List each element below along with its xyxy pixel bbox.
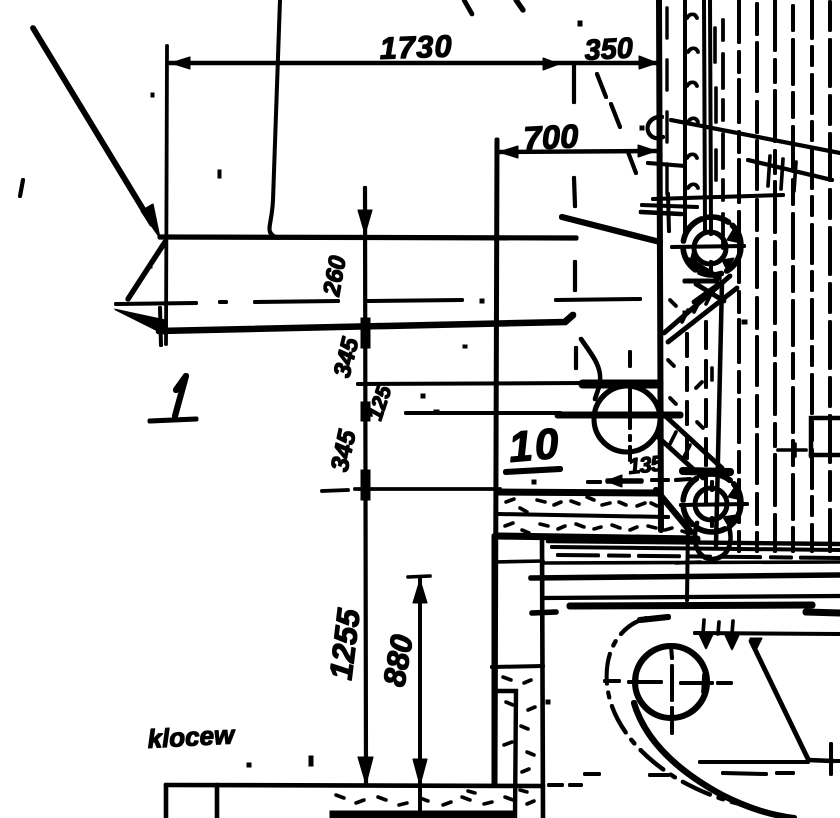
- svg-text:1730: 1730: [379, 28, 453, 66]
- svg-text:700: 700: [522, 117, 580, 157]
- svg-text:10: 10: [507, 420, 563, 472]
- svg-text:350: 350: [584, 33, 634, 67]
- svg-text:klocew: klocew: [147, 719, 237, 754]
